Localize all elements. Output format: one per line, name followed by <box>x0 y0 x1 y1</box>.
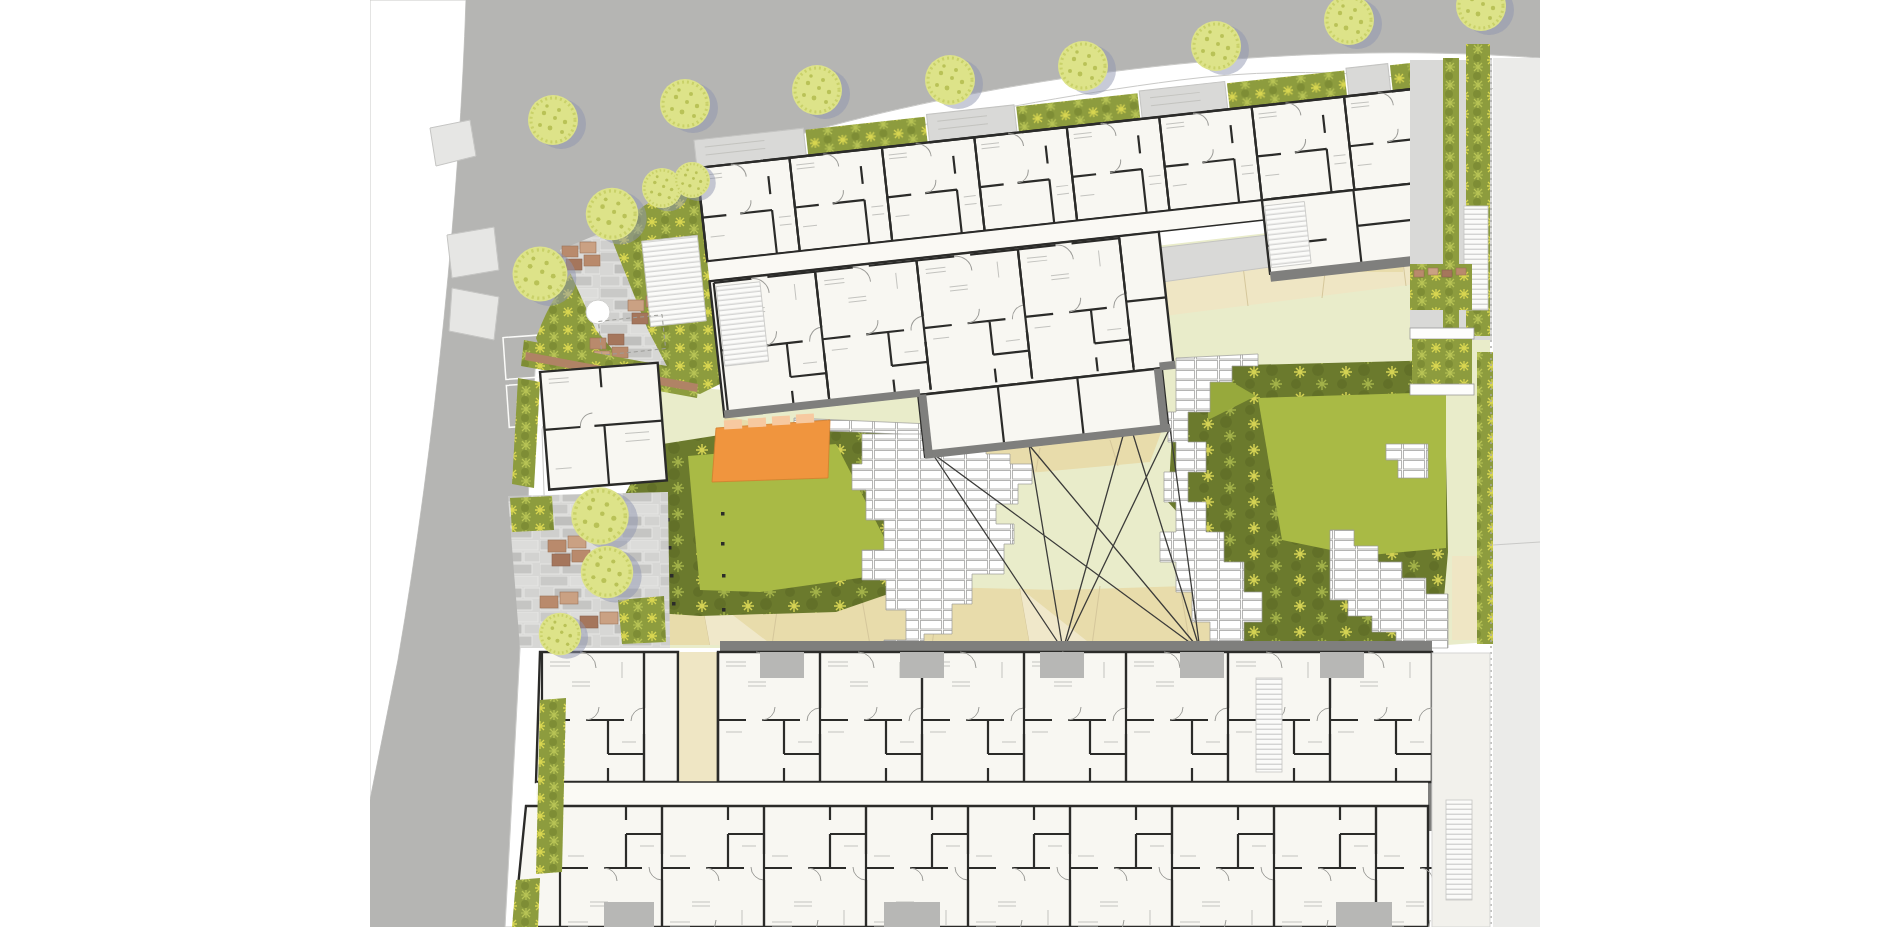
entry-porch <box>604 902 654 927</box>
entry-porch <box>1336 902 1392 927</box>
east-trellis-planter <box>1410 328 1474 395</box>
south-east-walkway-stair <box>1446 800 1472 900</box>
south-band-west-hedge <box>536 698 566 874</box>
entry-porch <box>760 652 804 678</box>
curb-island <box>447 227 499 278</box>
south-band-west-hedge-2 <box>512 878 540 927</box>
entry-porch <box>1180 652 1224 678</box>
page-margin-left <box>0 0 370 927</box>
west-building <box>540 363 667 490</box>
north-extension-stair <box>1265 202 1312 268</box>
orange-deck <box>712 414 830 482</box>
page-margin-right <box>1540 0 1900 927</box>
site-plan-drawing <box>0 0 1900 927</box>
east-hedge-bed-with-planters <box>1410 264 1472 310</box>
entry-porch <box>1040 652 1084 678</box>
orange-deck-surface <box>712 420 830 482</box>
south-building-band-2 <box>514 806 1478 927</box>
band1-gap-path <box>678 652 718 782</box>
band1-stair <box>1256 678 1282 772</box>
south-corridor <box>536 782 1428 806</box>
entry-porch <box>1320 652 1364 678</box>
site-plan-canvas <box>0 0 1900 927</box>
entry-porch <box>884 902 940 927</box>
north-row-stair <box>716 282 769 366</box>
west-paver-green-patch <box>618 596 666 644</box>
west-paver-green-patch <box>510 496 554 532</box>
side-street-right <box>1493 58 1540 927</box>
curb-island <box>449 288 499 340</box>
entry-porch <box>900 652 944 678</box>
corner-garden-stair <box>642 235 707 326</box>
